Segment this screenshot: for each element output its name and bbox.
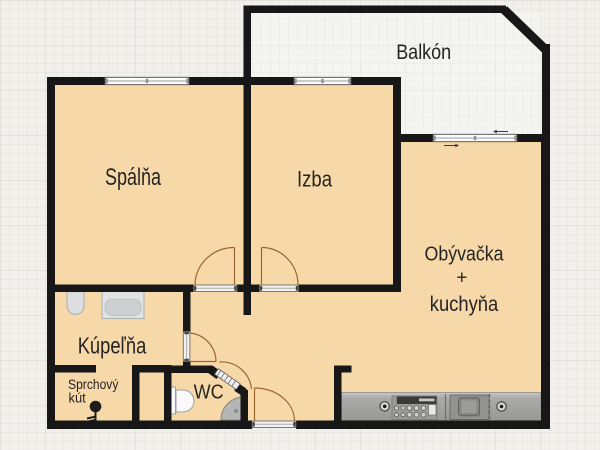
svg-text:Balkón: Balkón [396,41,451,64]
svg-text:Obývačka: Obývačka [425,243,505,266]
svg-text:Izba: Izba [297,166,332,191]
svg-text:kút: kút [69,390,86,405]
svg-text:WC: WC [194,381,224,403]
svg-text:Spálňa: Spálňa [105,164,161,191]
svg-text:+: + [456,268,467,289]
svg-text:Kúpeľňa: Kúpeľňa [78,333,147,359]
svg-text:kuchyňa: kuchyňa [430,293,499,316]
